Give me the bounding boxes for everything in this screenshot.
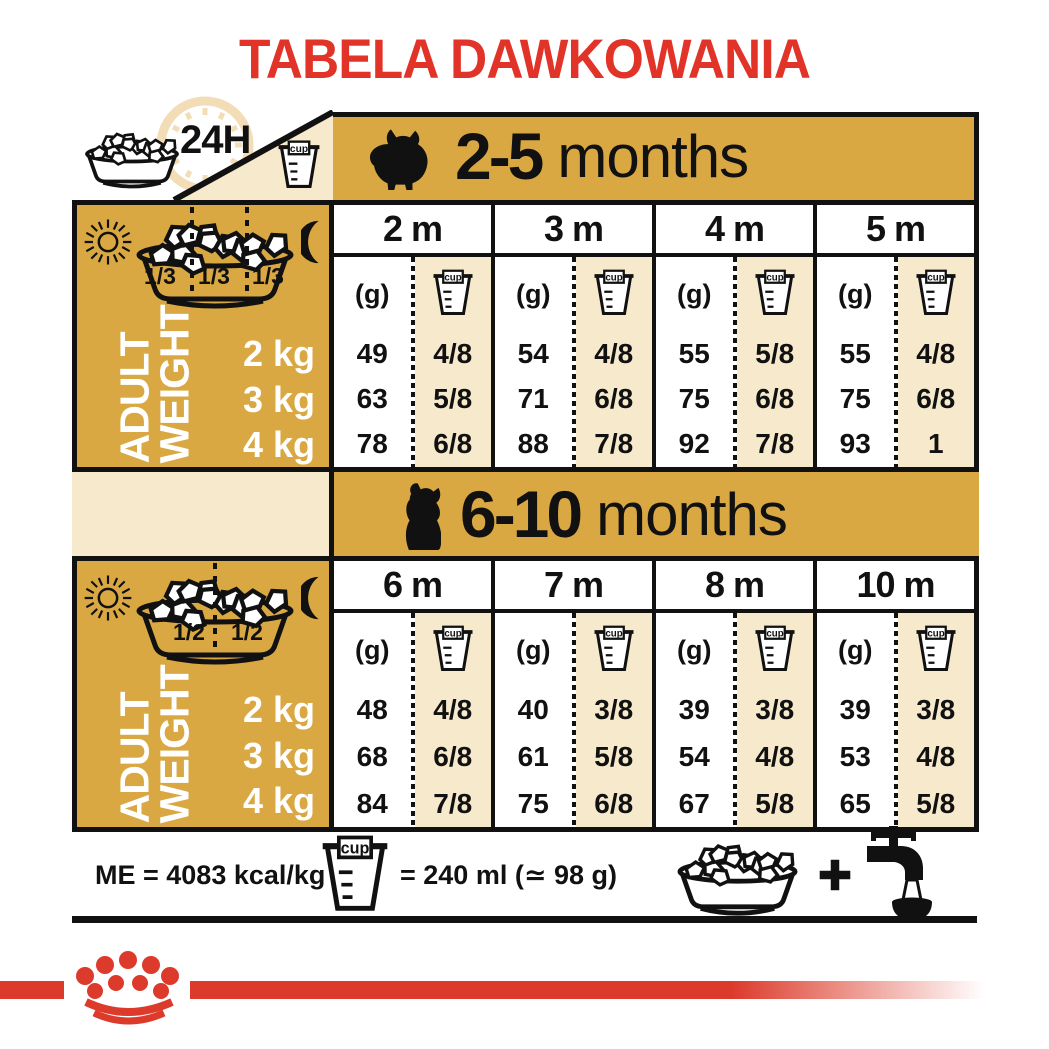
weight-row-label: 4 kg xyxy=(175,780,315,822)
cup-unit: cup xyxy=(415,613,492,687)
adult-weight-line1: ADULT xyxy=(115,665,155,823)
month-body: (g) 55 75 92 cup xyxy=(656,257,813,467)
month-header: 5 m xyxy=(817,205,974,257)
month-columns: 2 m (g) 49 63 78 xyxy=(334,205,974,467)
svg-text:cup: cup xyxy=(341,840,370,858)
age-range-2-5-months: 2-5 months xyxy=(455,112,748,200)
kibble-bowl-icon xyxy=(82,126,182,192)
portion-fraction: 1/2 xyxy=(227,619,267,646)
grams-unit: (g) xyxy=(334,613,411,687)
grams-value: 67 xyxy=(656,780,733,827)
sun-icon xyxy=(83,571,133,625)
cup-subcolumn: cup 4/8 5/8 6/8 xyxy=(415,257,492,467)
measuring-cup-icon: cup xyxy=(432,268,474,320)
month-column: 4 m (g) 55 75 92 xyxy=(652,205,813,467)
brand-band-left xyxy=(0,981,64,999)
cup-value: 4/8 xyxy=(898,734,975,781)
cup-value: 5/8 xyxy=(415,376,492,421)
measuring-cup-icon: cup xyxy=(432,624,474,676)
puppy-standing-icon xyxy=(368,126,430,192)
measuring-cup-icon: cup xyxy=(277,139,321,193)
adult-weight-panel: 1/2 1/2 ADULT WEIGHT 2 kg 3 kg 4 kg xyxy=(77,561,334,827)
month-header: 4 m xyxy=(656,205,813,257)
grams-subcolumn: (g) 55 75 92 xyxy=(656,257,733,467)
cup-unit: cup xyxy=(737,257,814,331)
grams-value: 61 xyxy=(495,734,572,781)
cup-value: 3/8 xyxy=(898,687,975,734)
measuring-cup-icon: cup xyxy=(915,268,957,320)
measuring-cup-icon: cup xyxy=(320,835,390,917)
grams-value: 75 xyxy=(656,376,733,421)
month-column: 8 m (g) 39 54 67 xyxy=(652,561,813,827)
grams-unit: (g) xyxy=(656,257,733,331)
grams-value: 55 xyxy=(656,331,733,376)
month-column: 5 m (g) 55 75 93 xyxy=(813,205,974,467)
month-body: (g) 54 71 88 cup xyxy=(495,257,652,467)
cup-value: 6/8 xyxy=(415,734,492,781)
moon-icon xyxy=(301,219,331,265)
cup-equivalence-label: = 240 ml (≃ 98 g) xyxy=(400,860,617,891)
divider-cream-block xyxy=(72,472,329,556)
cup-subcolumn: cup 4/8 6/8 1 xyxy=(898,257,975,467)
measuring-cup-icon: cup xyxy=(593,624,635,676)
grams-value: 75 xyxy=(817,376,894,421)
cup-value: 7/8 xyxy=(737,422,814,467)
cup-value: 5/8 xyxy=(737,331,814,376)
grams-value: 39 xyxy=(656,687,733,734)
age-range-unit: months xyxy=(557,122,748,191)
portion-fraction: 1/2 xyxy=(169,619,209,646)
month-columns: 6 m (g) 48 68 84 xyxy=(334,561,974,827)
month-body: (g) 40 61 75 cup xyxy=(495,613,652,827)
cup-unit: cup xyxy=(576,257,653,331)
royal-canin-crown-logo xyxy=(70,950,190,1028)
grams-value: 40 xyxy=(495,687,572,734)
cup-unit: cup xyxy=(898,257,975,331)
grams-subcolumn: (g) 48 68 84 xyxy=(334,613,411,827)
weight-row-label: 3 kg xyxy=(175,379,315,421)
month-body: (g) 48 68 84 cup xyxy=(334,613,491,827)
svg-text:cup: cup xyxy=(766,629,783,640)
sun-icon xyxy=(83,215,133,269)
grams-value: 78 xyxy=(334,422,411,467)
grams-value: 68 xyxy=(334,734,411,781)
svg-text:cup: cup xyxy=(927,629,944,640)
grams-unit: (g) xyxy=(495,257,572,331)
svg-text:cup: cup xyxy=(444,629,461,640)
age-range-bold: 2-5 xyxy=(455,118,541,194)
feeding-guide-page: TABELA DAWKOWANIA 24H cup 2-5 months xyxy=(0,0,1049,1049)
grams-subcolumn: (g) 54 71 88 xyxy=(495,257,572,467)
portion-fraction: 1/3 xyxy=(248,263,288,290)
weight-row-label: 2 kg xyxy=(175,689,315,731)
portion-fraction: 1/3 xyxy=(194,263,234,290)
cup-unit: cup xyxy=(576,613,653,687)
month-body: (g) 39 53 65 cup xyxy=(817,613,974,827)
month-column: 10 m (g) 39 53 65 xyxy=(813,561,974,827)
weight-row-label: 4 kg xyxy=(175,424,315,466)
grams-value: 49 xyxy=(334,331,411,376)
grams-subcolumn: (g) 55 75 93 xyxy=(817,257,894,467)
month-header: 7 m xyxy=(495,561,652,613)
cup-subcolumn: cup 3/8 4/8 5/8 xyxy=(898,613,975,827)
month-column: 6 m (g) 48 68 84 xyxy=(334,561,491,827)
svg-text:cup: cup xyxy=(605,273,622,284)
portion-fraction: 1/3 xyxy=(140,263,180,290)
svg-text:cup: cup xyxy=(766,273,783,284)
cup-value: 1 xyxy=(898,422,975,467)
brand-band-right xyxy=(190,981,985,999)
month-header: 2 m xyxy=(334,205,491,257)
measuring-cup-icon: cup xyxy=(915,624,957,676)
cup-value: 6/8 xyxy=(576,780,653,827)
month-body: (g) 49 63 78 cup xyxy=(334,257,491,467)
grams-unit: (g) xyxy=(817,613,894,687)
svg-text:cup: cup xyxy=(444,273,461,284)
page-title: TABELA DAWKOWANIA xyxy=(42,26,1007,91)
kibble-bowl-icon xyxy=(660,838,815,918)
cup-unit: cup xyxy=(415,257,492,331)
cup-value: 6/8 xyxy=(898,376,975,421)
month-column: 2 m (g) 49 63 78 xyxy=(334,205,491,467)
cup-value: 6/8 xyxy=(737,376,814,421)
age-range-bold: 6-10 xyxy=(460,476,580,552)
month-column: 3 m (g) 54 71 88 xyxy=(491,205,652,467)
age-range-6-10-months: 6-10 months xyxy=(460,472,787,556)
grams-value: 88 xyxy=(495,422,572,467)
month-header: 10 m xyxy=(817,561,974,613)
grams-unit: (g) xyxy=(656,613,733,687)
moon-icon xyxy=(301,575,331,621)
svg-text:cup: cup xyxy=(290,144,308,155)
cup-value: 4/8 xyxy=(737,734,814,781)
grams-subcolumn: (g) 40 61 75 xyxy=(495,613,572,827)
grams-subcolumn: (g) 49 63 78 xyxy=(334,257,411,467)
cup-value: 5/8 xyxy=(898,780,975,827)
measuring-cup-icon: cup xyxy=(754,268,796,320)
plus-icon xyxy=(818,858,852,892)
cup-unit: cup xyxy=(898,613,975,687)
month-body: (g) 55 75 93 cup xyxy=(817,257,974,467)
age-range-unit: months xyxy=(596,480,787,549)
grams-value: 48 xyxy=(334,687,411,734)
weight-row-label: 2 kg xyxy=(175,333,315,375)
cup-value: 3/8 xyxy=(576,687,653,734)
puppy-sitting-icon xyxy=(399,482,441,550)
cup-unit: cup xyxy=(737,613,814,687)
water-tap-icon xyxy=(855,826,939,922)
month-header: 6 m xyxy=(334,561,491,613)
cup-subcolumn: cup 4/8 6/8 7/8 xyxy=(415,613,492,827)
measuring-cup-icon: cup xyxy=(754,624,796,676)
cup-value: 4/8 xyxy=(415,687,492,734)
grams-value: 54 xyxy=(656,734,733,781)
adult-weight-line1: ADULT xyxy=(115,305,155,463)
grams-subcolumn: (g) 39 54 67 xyxy=(656,613,733,827)
metabolizable-energy-label: ME = 4083 kcal/kg xyxy=(95,860,325,891)
cup-value: 5/8 xyxy=(576,734,653,781)
svg-text:cup: cup xyxy=(605,629,622,640)
dosing-table-2-5-months: 1/3 1/3 1/3 ADULT WEIGHT 2 kg 3 kg 4 kg … xyxy=(72,200,979,472)
adult-weight-panel: 1/3 1/3 1/3 ADULT WEIGHT 2 kg 3 kg 4 kg xyxy=(77,205,334,467)
cup-value: 4/8 xyxy=(898,331,975,376)
grams-unit: (g) xyxy=(817,257,894,331)
month-column: 7 m (g) 40 61 75 xyxy=(491,561,652,827)
cup-value: 6/8 xyxy=(576,376,653,421)
measuring-cup-icon: cup xyxy=(593,268,635,320)
cup-value: 4/8 xyxy=(415,331,492,376)
grams-value: 53 xyxy=(817,734,894,781)
cup-subcolumn: cup 3/8 5/8 6/8 xyxy=(576,613,653,827)
svg-text:cup: cup xyxy=(927,273,944,284)
month-body: (g) 39 54 67 cup xyxy=(656,613,813,827)
cup-value: 6/8 xyxy=(415,422,492,467)
grams-value: 54 xyxy=(495,331,572,376)
month-header: 3 m xyxy=(495,205,652,257)
grams-value: 84 xyxy=(334,780,411,827)
grams-subcolumn: (g) 39 53 65 xyxy=(817,613,894,827)
cup-subcolumn: cup 4/8 6/8 7/8 xyxy=(576,257,653,467)
grams-unit: (g) xyxy=(495,613,572,687)
cup-value: 3/8 xyxy=(737,687,814,734)
grams-value: 71 xyxy=(495,376,572,421)
footer-divider xyxy=(72,916,977,923)
cup-value: 7/8 xyxy=(415,780,492,827)
grams-value: 93 xyxy=(817,422,894,467)
grams-value: 39 xyxy=(817,687,894,734)
grams-value: 65 xyxy=(817,780,894,827)
grams-value: 63 xyxy=(334,376,411,421)
dosing-table-6-10-months: 1/2 1/2 ADULT WEIGHT 2 kg 3 kg 4 kg 6 m … xyxy=(72,556,979,832)
month-header: 8 m xyxy=(656,561,813,613)
cup-value: 5/8 xyxy=(737,780,814,827)
cup-subcolumn: cup 3/8 4/8 5/8 xyxy=(737,613,814,827)
grams-value: 55 xyxy=(817,331,894,376)
cup-subcolumn: cup 5/8 6/8 7/8 xyxy=(737,257,814,467)
grams-value: 75 xyxy=(495,780,572,827)
grams-value: 92 xyxy=(656,422,733,467)
cup-value: 7/8 xyxy=(576,422,653,467)
weight-row-label: 3 kg xyxy=(175,735,315,777)
portion-bowl-halves-icon xyxy=(129,563,301,677)
cup-value: 4/8 xyxy=(576,331,653,376)
grams-unit: (g) xyxy=(334,257,411,331)
